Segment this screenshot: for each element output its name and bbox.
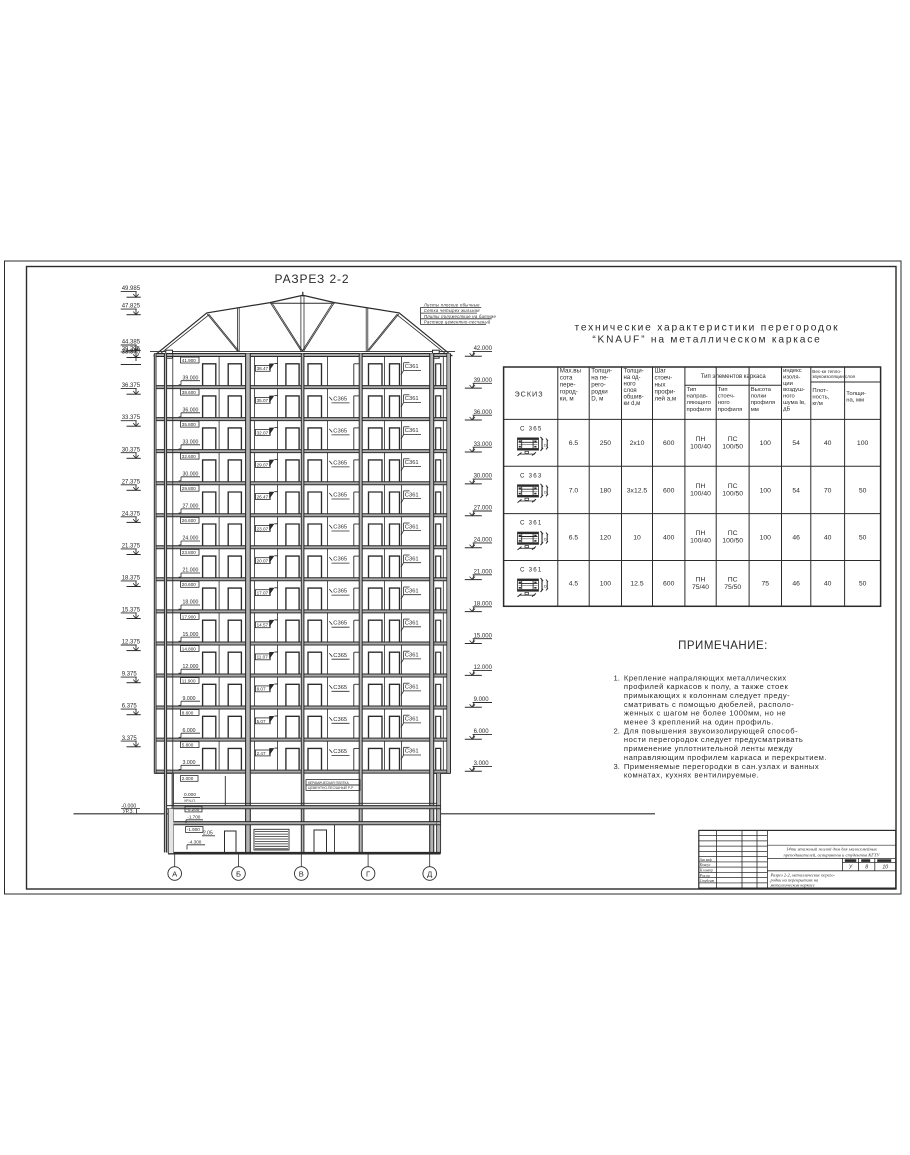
svg-text:23.07: 23.07 bbox=[257, 527, 269, 532]
svg-text:26.47: 26.47 bbox=[257, 494, 269, 499]
svg-text:ПС: ПС bbox=[728, 530, 738, 537]
svg-text:профиля: профиля bbox=[687, 407, 712, 413]
svg-text:город-: город- bbox=[560, 389, 578, 396]
svg-text:С361: С361 bbox=[405, 524, 419, 530]
svg-text:50: 50 bbox=[859, 534, 867, 541]
svg-text:38.600: 38.600 bbox=[182, 390, 196, 395]
svg-text:14.57: 14.57 bbox=[257, 623, 269, 628]
svg-text:Раствор цементно-песчаный: Раствор цементно-песчаный bbox=[424, 320, 491, 325]
svg-text:С 361: С 361 bbox=[520, 520, 543, 527]
svg-text:С361: С361 bbox=[405, 492, 419, 498]
svg-text:100/50: 100/50 bbox=[722, 538, 743, 545]
svg-text:35.07: 35.07 bbox=[257, 398, 269, 403]
svg-text:звукоизоляции слоя: звукоизоляции слоя bbox=[812, 374, 855, 379]
svg-text:3х12.5: 3х12.5 bbox=[627, 487, 648, 494]
svg-text:Д: Д bbox=[427, 869, 432, 878]
svg-text:ного: ного bbox=[718, 400, 731, 406]
svg-text:7.0: 7.0 bbox=[569, 487, 579, 494]
svg-text:мм: мм bbox=[751, 407, 759, 413]
svg-text:26.600: 26.600 bbox=[182, 518, 196, 523]
svg-text:С 361: С 361 bbox=[520, 567, 543, 574]
svg-text:пере-: пере- bbox=[560, 382, 576, 389]
svg-text:Применяемые перегородки в сан.: Применяемые перегородки в сан.узлах и ва… bbox=[624, 762, 819, 771]
svg-text:ки d,м: ки d,м bbox=[624, 401, 641, 407]
svg-text:Листы плоские обычные: Листы плоские обычные bbox=[423, 303, 480, 308]
svg-text:8.600: 8.600 bbox=[182, 710, 194, 715]
svg-text:С365: С365 bbox=[333, 589, 347, 595]
svg-text:ПС: ПС bbox=[728, 483, 738, 490]
svg-text:ного: ного bbox=[624, 382, 637, 388]
svg-text:стоеч-: стоеч- bbox=[655, 375, 673, 382]
svg-text:17.900: 17.900 bbox=[182, 614, 196, 619]
svg-text:Крепление напраляющих металлич: Крепление напраляющих металлических bbox=[624, 673, 787, 682]
svg-text:комнатах, кухнях вентилируемые: комнатах, кухнях вентилируемые. bbox=[624, 771, 759, 780]
svg-text:100/50: 100/50 bbox=[722, 443, 743, 450]
svg-text:-1.900: -1.900 bbox=[187, 827, 200, 832]
svg-text:ного: ного bbox=[783, 394, 795, 400]
svg-text:Консул: Консул bbox=[699, 863, 711, 867]
svg-text:ЭСКИЗ: ЭСКИЗ bbox=[515, 390, 544, 399]
svg-text:75/40: 75/40 bbox=[692, 584, 709, 591]
svg-text:ПН: ПН bbox=[696, 436, 706, 443]
svg-text:70: 70 bbox=[824, 487, 832, 494]
svg-text:Плот-: Плот- bbox=[812, 388, 828, 394]
svg-text:С365: С365 bbox=[333, 460, 347, 466]
svg-text:С365: С365 bbox=[333, 685, 347, 691]
svg-text:направ-: направ- bbox=[687, 394, 708, 400]
svg-text:11.900: 11.900 bbox=[182, 678, 196, 683]
svg-text:32.07: 32.07 bbox=[257, 430, 269, 435]
svg-text:С361: С361 bbox=[405, 588, 419, 594]
svg-text:ПН: ПН bbox=[696, 576, 706, 583]
svg-text:С 363: С 363 bbox=[520, 472, 543, 479]
svg-text:4.5: 4.5 bbox=[569, 581, 579, 588]
svg-text:РАЗРЕЗ 2-2: РАЗРЕЗ 2-2 bbox=[275, 272, 350, 286]
svg-text:20.07: 20.07 bbox=[257, 559, 269, 564]
svg-text:С365: С365 bbox=[333, 428, 347, 434]
svg-text:применение уплотнительной лент: применение уплотнительной ленты между bbox=[624, 744, 793, 753]
svg-text:Рук.пр: Рук.пр bbox=[699, 874, 710, 878]
svg-text:С365: С365 bbox=[333, 493, 347, 499]
svg-text:120: 120 bbox=[600, 534, 612, 541]
svg-text:С361: С361 bbox=[405, 396, 419, 402]
svg-text:6.5: 6.5 bbox=[569, 534, 579, 541]
svg-text:54: 54 bbox=[792, 487, 800, 494]
svg-text:С361: С361 bbox=[405, 460, 419, 466]
svg-text:8: 8 bbox=[865, 865, 868, 871]
svg-text:ки, м: ки, м bbox=[560, 396, 574, 403]
svg-text:14ти этажный жилой дом для мал: 14ти этажный жилой дом для малосемейных bbox=[786, 847, 877, 852]
svg-text:С361: С361 bbox=[405, 653, 419, 659]
svg-text:100/40: 100/40 bbox=[690, 443, 711, 450]
svg-text:Студент: Студент bbox=[700, 879, 715, 883]
svg-text:Толщи-: Толщи- bbox=[846, 391, 866, 397]
svg-text:600: 600 bbox=[663, 581, 675, 588]
svg-text:75/50: 75/50 bbox=[724, 584, 741, 591]
svg-text:-1.700: -1.700 bbox=[187, 815, 200, 820]
svg-text:ности перегородок следует пред: ности перегородок следует предусматриват… bbox=[624, 735, 804, 744]
svg-text:14.800: 14.800 bbox=[182, 646, 196, 651]
svg-text:54: 54 bbox=[792, 440, 800, 447]
svg-text:ляющего: ляющего bbox=[687, 400, 712, 406]
svg-text:Зав.каф: Зав.каф bbox=[700, 858, 712, 862]
svg-text:ПС: ПС bbox=[728, 576, 738, 583]
svg-text:46: 46 bbox=[792, 534, 800, 541]
svg-text:УР.Ч.П.: УР.Ч.П. bbox=[184, 799, 196, 803]
svg-text:1.: 1. bbox=[614, 673, 620, 682]
svg-text:Мах.вы: Мах.вы bbox=[560, 368, 582, 375]
svg-text:полки: полки bbox=[751, 394, 767, 400]
svg-text:100/50: 100/50 bbox=[722, 491, 743, 498]
svg-text:С365: С365 bbox=[333, 717, 347, 723]
svg-text:Н.контр: Н.контр bbox=[699, 869, 713, 873]
svg-text:ПН: ПН bbox=[696, 530, 706, 537]
svg-text:на од-: на од- bbox=[624, 375, 641, 381]
svg-text:100: 100 bbox=[760, 440, 772, 447]
svg-text:40: 40 bbox=[824, 534, 832, 541]
svg-text:кг/м: кг/м bbox=[812, 401, 822, 407]
svg-text:400: 400 bbox=[663, 534, 675, 541]
svg-text:38.375: 38.375 bbox=[122, 350, 141, 356]
svg-text:29.800: 29.800 bbox=[182, 486, 196, 491]
svg-text:С361: С361 bbox=[405, 621, 419, 627]
svg-text:11.07: 11.07 bbox=[257, 655, 269, 660]
svg-text:32.600: 32.600 bbox=[182, 454, 196, 459]
svg-text:С365: С365 bbox=[333, 621, 347, 627]
svg-text:сматривать с помощью дюбелей,: сматривать с помощью дюбелей, располо- bbox=[624, 700, 794, 709]
svg-text:2.000: 2.000 bbox=[182, 776, 194, 781]
svg-text:С361: С361 bbox=[405, 685, 419, 691]
svg-text:на пе-: на пе- bbox=[591, 375, 608, 382]
svg-text:100: 100 bbox=[760, 487, 772, 494]
svg-text:40: 40 bbox=[824, 581, 832, 588]
svg-text:С365: С365 bbox=[333, 749, 347, 755]
svg-text:рего-: рего- bbox=[591, 382, 606, 389]
svg-text:100/40: 100/40 bbox=[690, 491, 711, 498]
svg-text:41.900: 41.900 bbox=[182, 358, 196, 363]
svg-text:КЕРАМИЧЕСКАЯ ПЛИТКА: КЕРАМИЧЕСКАЯ ПЛИТКА bbox=[308, 781, 349, 785]
svg-text:направляющим профилем каркаса: направляющим профилем каркаса и перекрыт… bbox=[624, 753, 827, 762]
svg-text:С361: С361 bbox=[405, 556, 419, 562]
svg-text:46: 46 bbox=[792, 581, 800, 588]
svg-text:Плиты полужесткие на битуме: Плиты полужесткие на битуме bbox=[424, 314, 497, 319]
svg-text:технические характеристики пер: технические характеристики перегородок bbox=[575, 323, 840, 334]
svg-text:23.800: 23.800 bbox=[182, 550, 196, 555]
svg-text:С365: С365 bbox=[333, 557, 347, 563]
svg-text:100: 100 bbox=[760, 534, 772, 541]
svg-text:38.47: 38.47 bbox=[257, 366, 269, 371]
svg-text:2.: 2. bbox=[614, 726, 620, 735]
svg-text:С361: С361 bbox=[405, 749, 419, 755]
svg-text:ПРИМЕЧАНИЕ:: ПРИМЕЧАНИЕ: bbox=[678, 640, 768, 652]
svg-text:29.07: 29.07 bbox=[257, 462, 269, 467]
svg-text:6.5: 6.5 bbox=[569, 440, 579, 447]
svg-text:на, мм: на, мм bbox=[846, 398, 864, 404]
svg-text:дБ: дБ bbox=[783, 406, 790, 412]
svg-text:родки: родки bbox=[591, 389, 608, 396]
svg-text:ции: ции bbox=[783, 381, 793, 387]
svg-text:2.47: 2.47 bbox=[257, 751, 266, 756]
svg-text:-4.300: -4.300 bbox=[188, 840, 201, 845]
svg-text:40: 40 bbox=[824, 440, 832, 447]
svg-text:600: 600 bbox=[663, 440, 675, 447]
svg-text:8.07: 8.07 bbox=[257, 687, 266, 692]
svg-text:изоля-: изоля- bbox=[783, 374, 800, 380]
svg-text:сота: сота bbox=[560, 375, 573, 382]
svg-text:ных: ных bbox=[655, 382, 667, 389]
svg-text:индекс: индекс bbox=[783, 368, 802, 374]
svg-text:Б: Б bbox=[236, 869, 241, 878]
svg-text:ность,: ность, bbox=[812, 395, 829, 401]
svg-text:Высота: Высота bbox=[751, 387, 772, 393]
svg-text:В: В bbox=[299, 869, 304, 878]
svg-text:УР.З.: УР.З. bbox=[123, 809, 134, 815]
svg-text:лей а,м: лей а,м bbox=[655, 396, 677, 403]
svg-text:D, м: D, м bbox=[591, 396, 603, 403]
svg-text:250: 250 bbox=[600, 440, 612, 447]
svg-text:обшив-: обшив- bbox=[624, 395, 644, 401]
svg-text:С365: С365 bbox=[333, 396, 347, 402]
svg-text:17.07: 17.07 bbox=[257, 591, 269, 596]
svg-text:С 365: С 365 bbox=[520, 425, 543, 432]
svg-text:слоя: слоя bbox=[624, 388, 637, 394]
svg-text:стоеч-: стоеч- bbox=[718, 394, 735, 400]
svg-text:металлическом каркасе: металлическом каркасе bbox=[770, 882, 815, 887]
svg-text:Тип: Тип bbox=[687, 387, 697, 393]
svg-text:профилей каркасов к полу, а та: профилей каркасов к полу, а также стоек bbox=[624, 682, 789, 691]
svg-text:2х10: 2х10 bbox=[630, 440, 645, 447]
svg-text:женных с шагом не более 1000мм: женных с шагом не более 1000мм, но не bbox=[624, 709, 786, 718]
svg-text:Шаг: Шаг bbox=[655, 368, 667, 375]
svg-text:“KNAUF” на металлическом карка: “KNAUF” на металлическом каркасе bbox=[592, 335, 821, 346]
svg-text:100/40: 100/40 bbox=[690, 538, 711, 545]
svg-text:Для повышения звукоизолирующей: Для повышения звукоизолирующей способ- bbox=[624, 726, 798, 735]
svg-text:3.: 3. bbox=[614, 762, 620, 771]
svg-text:профи-: профи- bbox=[655, 389, 676, 396]
svg-text:10: 10 bbox=[882, 865, 888, 871]
svg-text:180: 180 bbox=[600, 487, 612, 494]
svg-text:600: 600 bbox=[663, 487, 675, 494]
svg-text:35.800: 35.800 bbox=[182, 422, 196, 427]
svg-text:100: 100 bbox=[857, 440, 869, 447]
svg-text:С365: С365 bbox=[333, 653, 347, 659]
svg-text:Тип элементов каркаса: Тип элементов каркаса bbox=[701, 374, 767, 380]
svg-text:Толщи-: Толщи- bbox=[624, 369, 644, 375]
svg-text:менее 3 креплений на один проф: менее 3 креплений на один профиль. bbox=[624, 718, 774, 727]
svg-text:С365: С365 bbox=[333, 525, 347, 531]
svg-text:ПН: ПН bbox=[696, 483, 706, 490]
svg-text:20.600: 20.600 bbox=[182, 582, 196, 587]
svg-text:шума Iв,: шума Iв, bbox=[783, 400, 806, 406]
svg-text:100: 100 bbox=[600, 581, 612, 588]
svg-text:воздуш-: воздуш- bbox=[783, 387, 805, 393]
svg-text:10: 10 bbox=[633, 534, 641, 541]
svg-text:С361: С361 bbox=[405, 428, 419, 434]
svg-text:Толщи-: Толщи- bbox=[591, 368, 612, 375]
svg-text:5.800: 5.800 bbox=[182, 743, 194, 748]
svg-text:Г: Г bbox=[366, 869, 370, 878]
svg-text:75: 75 bbox=[762, 581, 770, 588]
svg-text:С361: С361 bbox=[405, 364, 419, 370]
svg-text:профиля: профиля bbox=[751, 400, 776, 406]
svg-text:ПС: ПС bbox=[728, 436, 738, 443]
svg-text:-0.200: -0.200 bbox=[186, 807, 199, 812]
svg-text:примыкающих к колоннам следует: примыкающих к колоннам следует преду- bbox=[624, 691, 790, 700]
svg-text:ЦЕМЕНТНО-ПЕСЧАНЫЙ Р-Р: ЦЕМЕНТНО-ПЕСЧАНЫЙ Р-Р bbox=[308, 786, 354, 790]
svg-text:Сетка четырех жильная: Сетка четырех жильная bbox=[424, 308, 480, 313]
svg-text:5.07: 5.07 bbox=[257, 719, 266, 724]
svg-text:Тип: Тип bbox=[718, 387, 728, 393]
svg-text:12.5: 12.5 bbox=[630, 581, 643, 588]
svg-text:50: 50 bbox=[859, 581, 867, 588]
svg-text:профиля: профиля bbox=[718, 407, 743, 413]
svg-text:С361: С361 bbox=[405, 717, 419, 723]
svg-text:50: 50 bbox=[859, 487, 867, 494]
